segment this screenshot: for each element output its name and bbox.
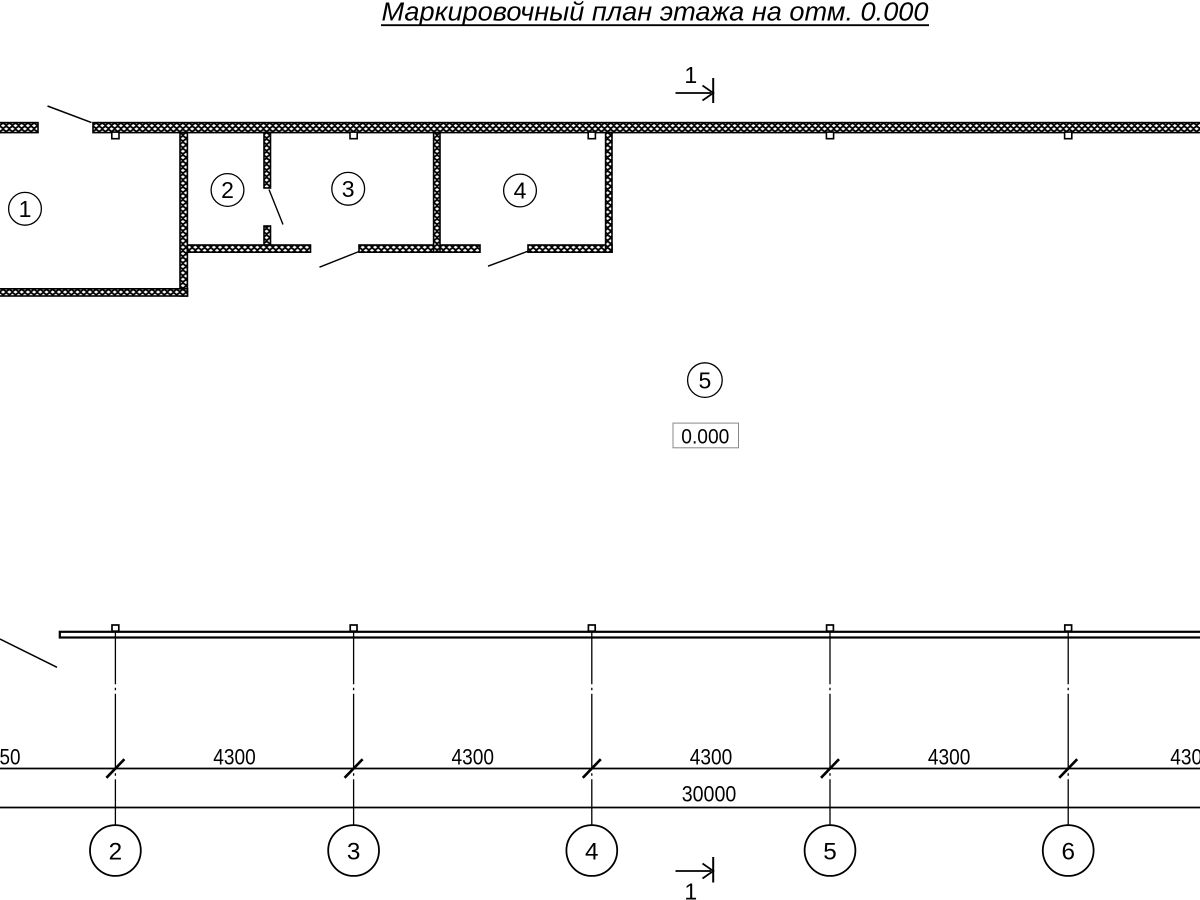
svg-text:3: 3 (347, 838, 361, 865)
svg-text:4300: 4300 (1170, 744, 1200, 769)
svg-text:Маркировочный план этажа на от: Маркировочный план этажа на отм. 0.000 (382, 0, 929, 27)
svg-text:4: 4 (514, 178, 527, 204)
svg-text:5: 5 (699, 367, 712, 393)
svg-text:2: 2 (221, 177, 234, 203)
svg-text:50: 50 (0, 744, 21, 769)
svg-text:3: 3 (342, 176, 355, 202)
svg-text:4: 4 (585, 838, 599, 865)
svg-text:4300: 4300 (213, 744, 256, 769)
svg-text:30000: 30000 (682, 782, 737, 807)
svg-text:5: 5 (823, 838, 837, 865)
svg-text:6: 6 (1061, 838, 1075, 865)
svg-text:2: 2 (109, 838, 123, 865)
svg-text:4300: 4300 (928, 744, 971, 769)
svg-text:4300: 4300 (451, 744, 494, 769)
svg-text:0.000: 0.000 (681, 424, 729, 448)
svg-text:1: 1 (19, 196, 32, 222)
svg-text:4300: 4300 (690, 744, 733, 769)
svg-text:1: 1 (684, 62, 697, 88)
svg-text:1: 1 (684, 879, 697, 900)
